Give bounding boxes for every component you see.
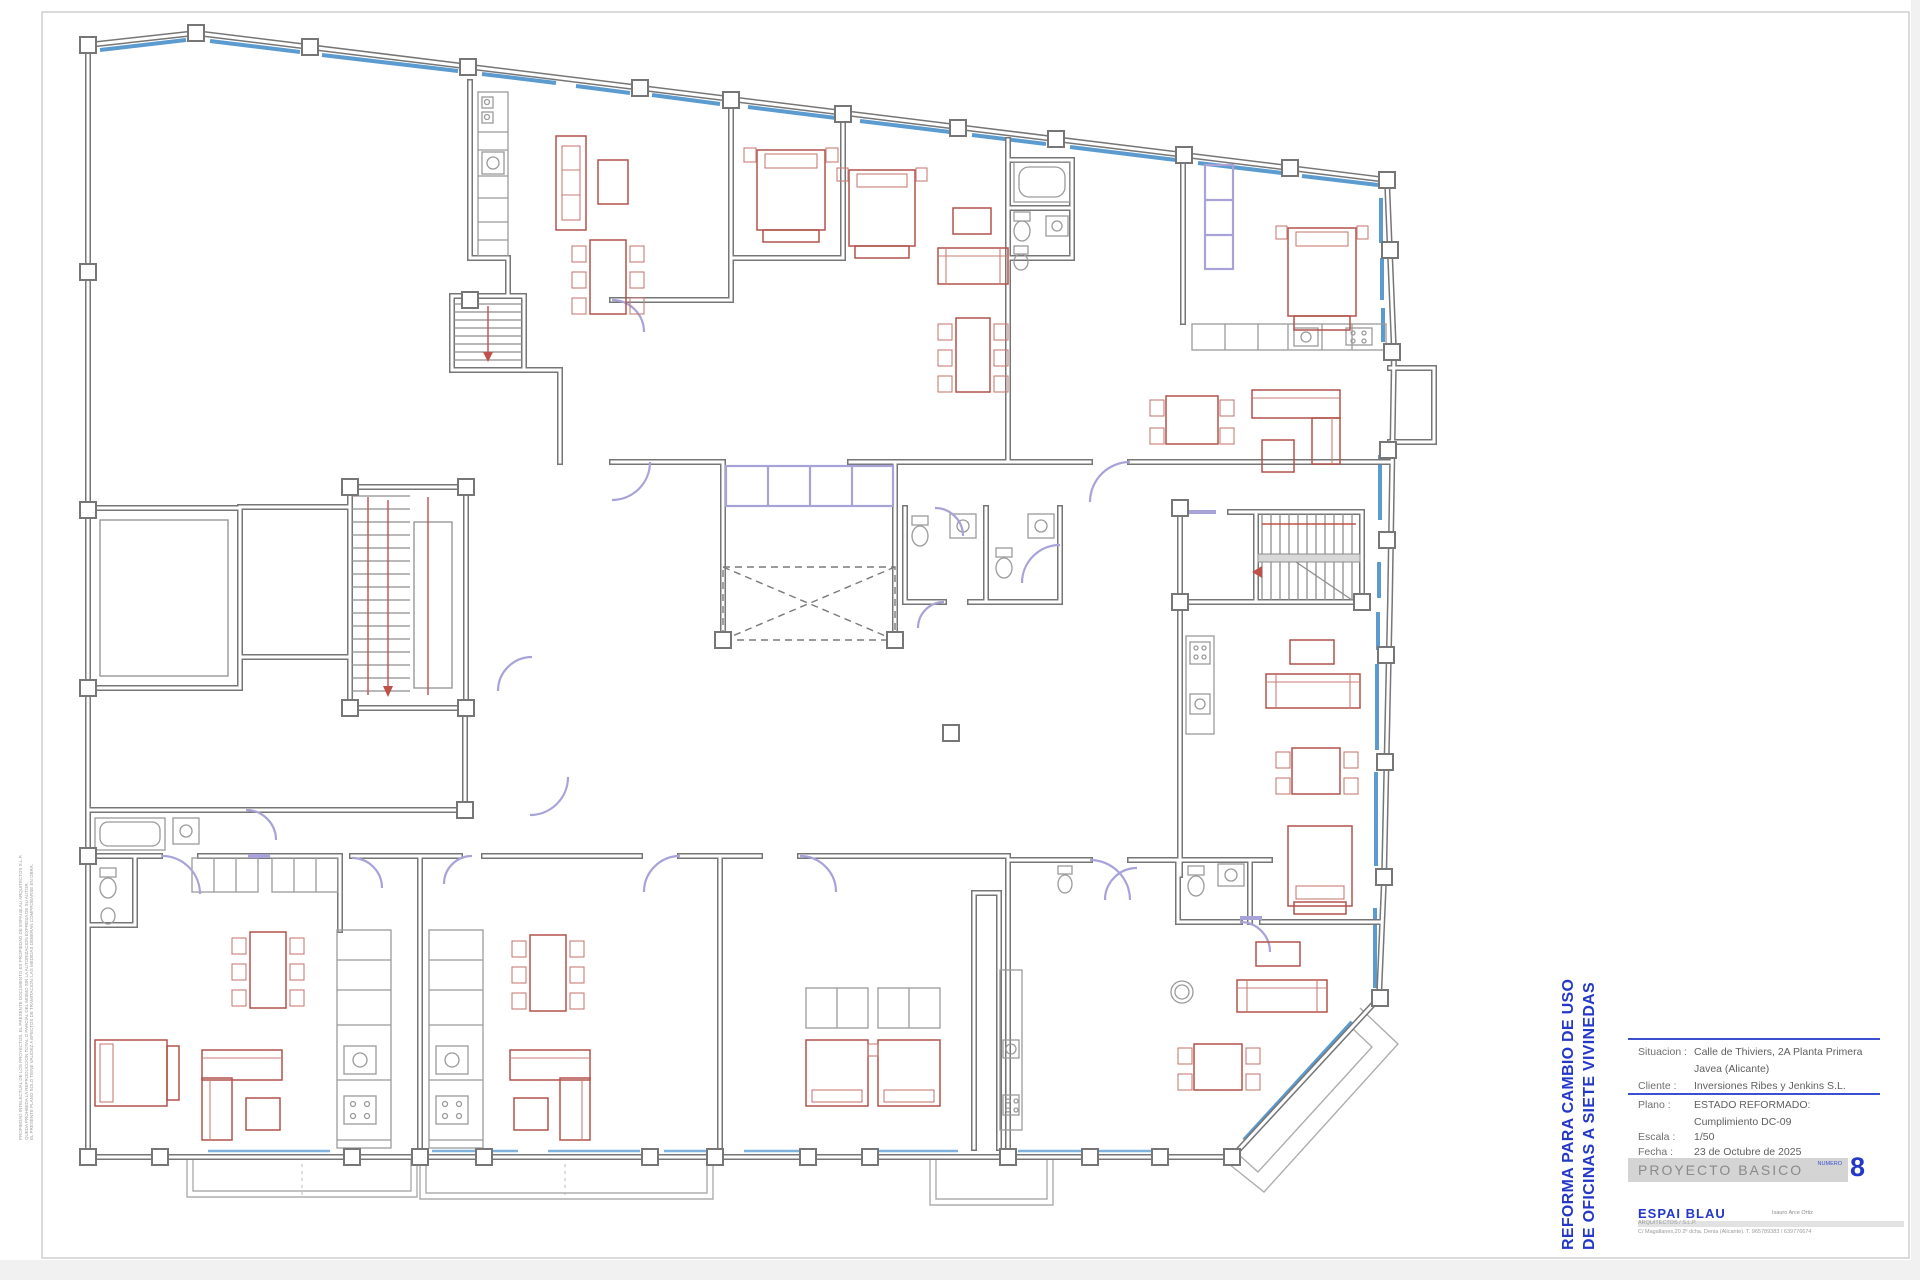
firm-name: ESPAI BLAU [1638,1206,1726,1221]
drawing-sheet: PROPIEDAD INTELECTUAL DE LOS PROYECTOS. … [0,0,1920,1280]
sheet-number: 8 [1850,1152,1865,1183]
doors-and-partitions [162,165,1270,952]
cliente-label: Cliente : [1638,1080,1690,1092]
situacion-value: Calle de Thiviers, 2A Planta Primera [1694,1046,1894,1058]
escala-label: Escala : [1638,1131,1690,1143]
stage-bar: PROYECTO BASICO NUMERO [1628,1158,1848,1182]
elevator-shaft-dashed [723,567,895,640]
escala-value: 1/50 [1694,1131,1894,1143]
project-title-vertical: REFORMA PARA CAMBIO DE USO DE OFICINAS A… [1558,1030,1600,1250]
sheet-edge-right [1911,0,1920,1280]
titleblock-divider-top [1628,1038,1880,1040]
project-title-line1: REFORMA PARA CAMBIO DE USO [1558,1030,1579,1250]
stairs-top-left [454,304,522,362]
plano-value: ESTADO REFORMADO: [1694,1099,1894,1111]
titleblock-divider-mid [1628,1093,1880,1095]
sheet-edge-bottom [0,1260,1920,1280]
fecha-label: Fecha : [1638,1146,1690,1158]
legal-line: PROPIEDAD INTELECTUAL DE LOS PROYECTOS. … [18,840,24,1140]
stairs-core-a [352,496,452,697]
floor-plan-drawing [0,0,1920,1280]
plano-value2: Cumplimiento DC-09 [1694,1116,1894,1128]
plano-label: Plano : [1638,1099,1690,1111]
firm-subtitle: ARQUITECTOS / S.L.P. [1638,1220,1696,1226]
patio-inner-line [100,520,228,676]
numero-label: NUMERO [1818,1161,1842,1167]
legal-line: EL PRESENTE PLANO SOLO TIENE VALIDEZ A E… [29,840,35,1140]
stairs-core-b [1252,514,1360,600]
stage-label: PROYECTO BASICO [1638,1162,1803,1178]
architect-name: Isauro Arce Ortiz [1772,1210,1813,1216]
legal-sidebar-text: PROPIEDAD INTELECTUAL DE LOS PROYECTOS. … [18,840,35,1140]
cliente-value: Inversiones Ribes y Jenkins S.L. [1694,1080,1894,1092]
columns [80,25,1400,1165]
fixtures [95,92,1386,1148]
firm-address: C/ Magallanes,20 2º dcha. Denia (Alicant… [1638,1229,1811,1235]
situacion-value2: Javea (Alicante) [1694,1063,1894,1075]
project-title-line2: DE OFICINAS A SIETE VIVINEDAS [1579,1030,1600,1250]
situacion-label: Situacion : [1638,1046,1690,1058]
